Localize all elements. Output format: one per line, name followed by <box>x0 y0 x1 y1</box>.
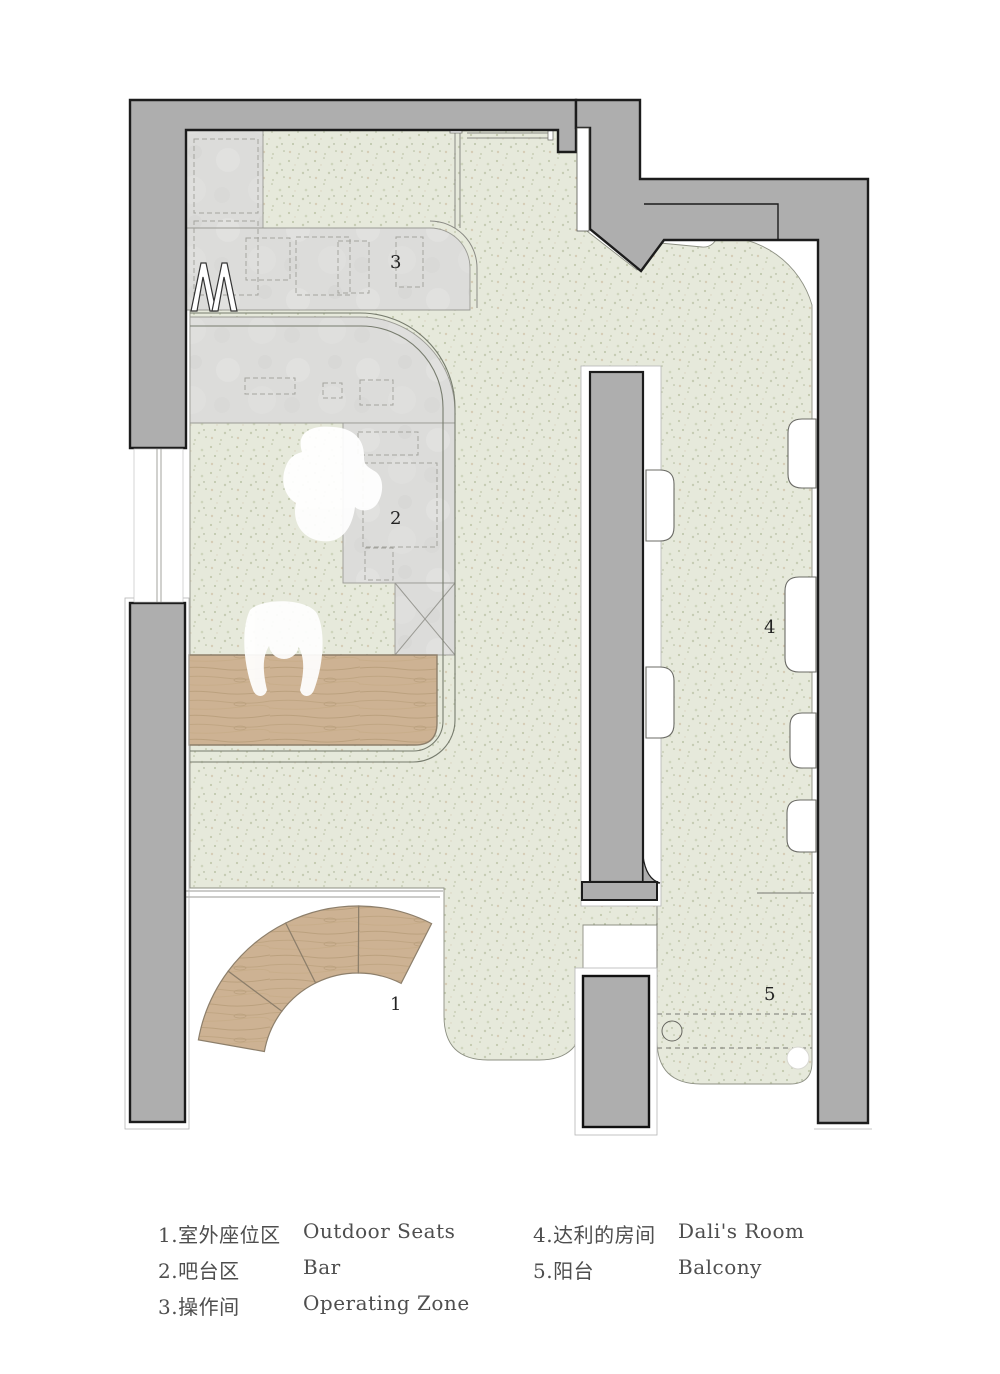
legend-item-4-zh: 4.达利的房间 <box>533 1219 656 1248</box>
wall-lower-left <box>130 603 185 1122</box>
niche-right-3 <box>790 713 816 768</box>
outdoor-boundary-lines <box>186 891 443 897</box>
legend-item-3-en: Operating Zone <box>303 1291 470 1315</box>
legend-item-1-en: Outdoor Seats <box>303 1219 455 1243</box>
wall-middle-body <box>590 372 643 882</box>
niche-right-1 <box>788 419 816 488</box>
wall-lower-column <box>575 968 657 1135</box>
legend-item-2-en: Bar <box>303 1255 341 1279</box>
wall-middle <box>581 366 661 906</box>
legend-item-3-zh: 3.操作间 <box>158 1291 240 1320</box>
room-label-5: 5 <box>764 984 775 1005</box>
floor-plan: 1 2 3 4 5 <box>0 0 1000 1140</box>
balcony-light-icon <box>787 1047 809 1069</box>
outdoor-bench-arc <box>198 906 431 1052</box>
niche-right-2 <box>785 577 816 672</box>
room-label-4: 4 <box>764 617 775 638</box>
room-label-2: 2 <box>390 508 401 529</box>
wall-middle-base <box>582 882 657 900</box>
legend: 1.室外座位区 Outdoor Seats 2.吧台区 Bar 3.操作间 Op… <box>0 1206 1000 1336</box>
wall-door-slot <box>577 128 589 231</box>
legend-item-1-zh: 1.室外座位区 <box>158 1219 281 1248</box>
room-label-3: 3 <box>390 252 401 273</box>
figure-seated-head <box>269 629 299 659</box>
legend-item-4-en: Dali's Room <box>678 1219 804 1243</box>
niche-left-1 <box>646 470 674 541</box>
legend-item-2-zh: 2.吧台区 <box>158 1255 240 1284</box>
niche-right-4 <box>787 800 816 852</box>
legend-item-5-en: Balcony <box>678 1255 762 1279</box>
window-left <box>134 449 183 602</box>
wall-lower-column-body <box>583 976 649 1127</box>
niche-left-2 <box>646 667 674 738</box>
legend-item-5-zh: 5.阳台 <box>533 1255 594 1284</box>
room-label-1: 1 <box>390 994 401 1015</box>
